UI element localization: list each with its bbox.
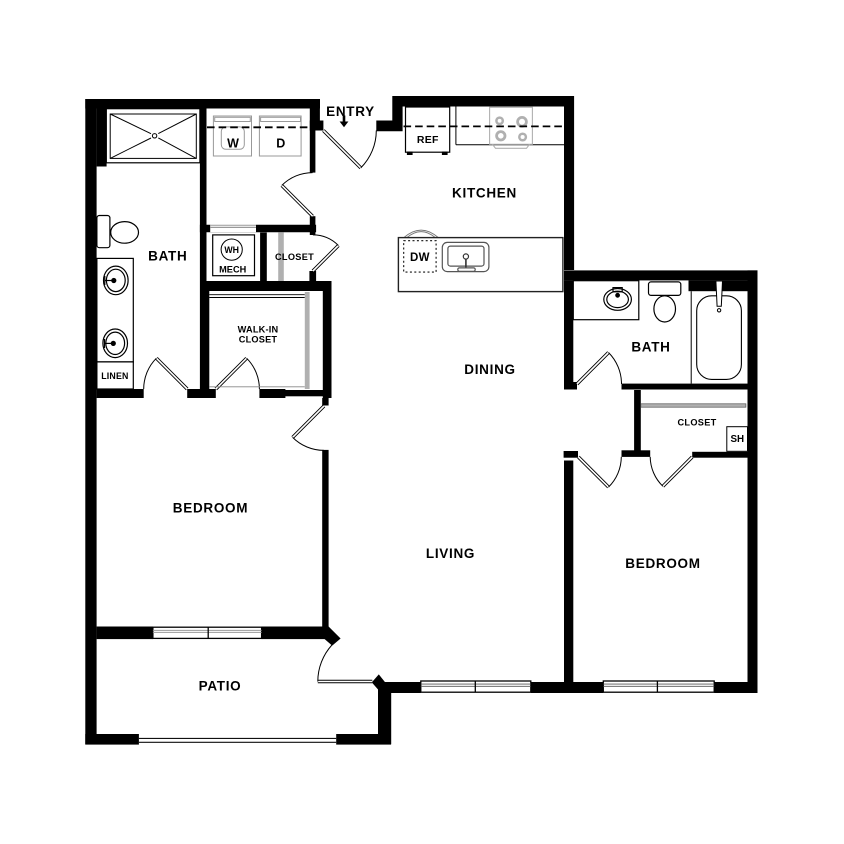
svg-text:D: D <box>276 136 285 150</box>
svg-text:BEDROOM: BEDROOM <box>173 500 248 515</box>
svg-text:LIVING: LIVING <box>426 546 475 561</box>
svg-text:W: W <box>227 136 239 150</box>
svg-text:WALK-IN: WALK-IN <box>238 324 279 334</box>
svg-text:BATH: BATH <box>631 339 670 354</box>
svg-text:BEDROOM: BEDROOM <box>625 556 700 571</box>
svg-text:PATIO: PATIO <box>199 678 242 693</box>
svg-text:SH: SH <box>730 434 744 445</box>
svg-text:DINING: DINING <box>464 362 515 377</box>
svg-text:KITCHEN: KITCHEN <box>452 186 517 201</box>
svg-text:WH: WH <box>224 245 239 255</box>
svg-text:ENTRY: ENTRY <box>326 104 375 119</box>
svg-text:MECH: MECH <box>219 264 246 274</box>
svg-text:CLOSET: CLOSET <box>239 334 278 344</box>
svg-text:CLOSET: CLOSET <box>677 417 716 427</box>
svg-text:CLOSET: CLOSET <box>275 252 314 262</box>
svg-text:BATH: BATH <box>148 249 187 264</box>
svg-text:LINEN: LINEN <box>101 371 128 381</box>
svg-text:DW: DW <box>410 252 430 264</box>
svg-text:REF: REF <box>417 134 439 146</box>
